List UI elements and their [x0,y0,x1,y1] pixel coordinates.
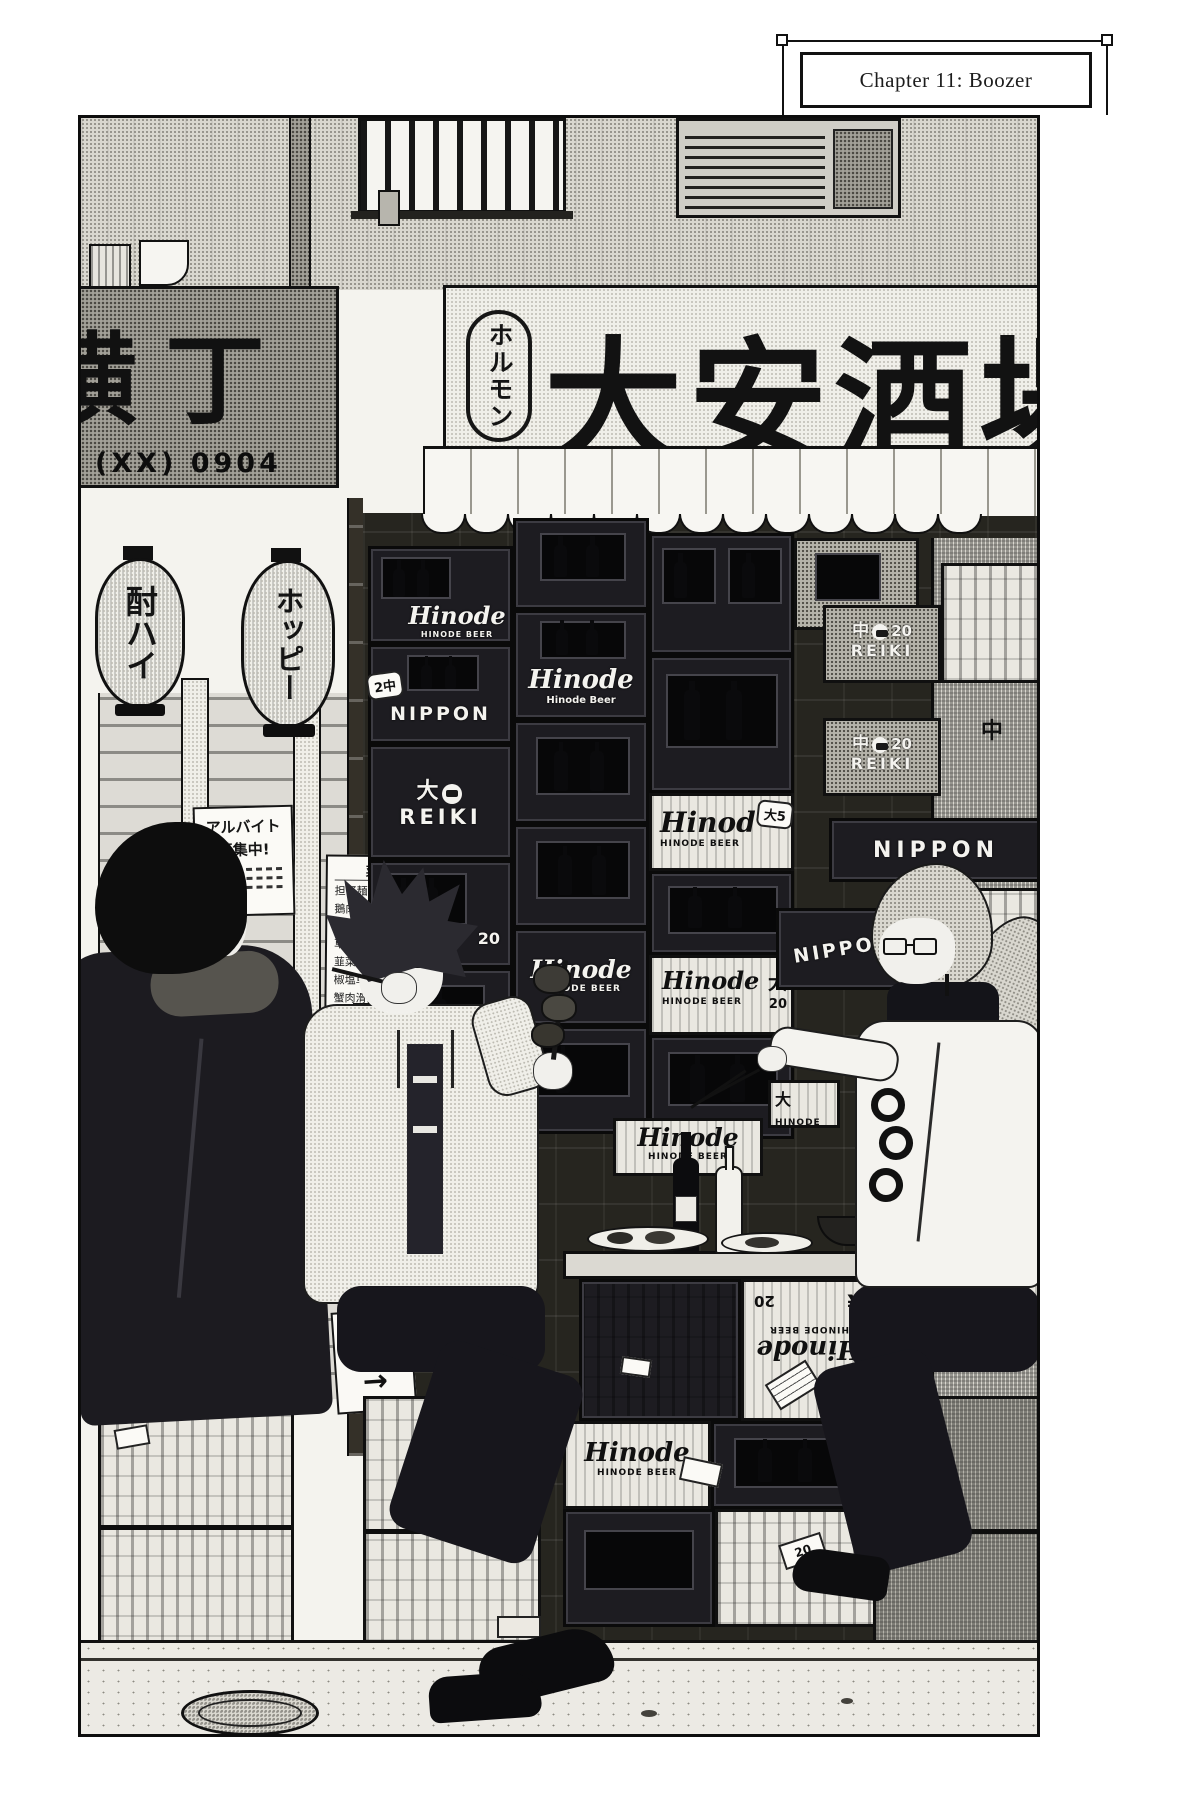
medium-mark-far-right: 中 [981,713,1003,745]
qty-20-label: 20 [891,735,912,753]
hinode-logo: Hinode [662,966,759,995]
title-frame-corner-right [1101,34,1113,46]
manga-page: { "page": { "chapter_title": "Chapter 11… [0,0,1200,1800]
sleeve-squiggle [865,1164,907,1206]
beer-crate [513,518,649,610]
crate-tag-large-5: 大5 [756,799,795,830]
awning [423,446,1040,516]
manhole-cover [181,1690,319,1736]
bottle-silhouette [586,629,598,655]
bottle-silhouette [393,569,405,597]
crate-window [666,674,778,748]
label-row: Hinode 大 [662,966,787,995]
hinode-caps: HINODE BEER [662,997,742,1012]
side-sign-phone: (XX) 0904 [95,448,282,479]
awning-scallop [765,514,810,534]
crate-window [662,548,716,604]
ac-louvers [685,129,825,209]
bottle-silhouette [586,545,599,577]
crate-window [536,841,630,899]
bottle-silhouette [684,690,700,740]
lantern-right-text: ホッピー [267,586,309,702]
ribbed-pipe [89,244,131,290]
crate-tag-2-medium: 2中 [365,670,404,702]
drain-pipe [289,118,311,288]
reiki-label: REIKI [371,805,510,829]
street-debris [841,1698,853,1704]
food-item [745,1237,779,1248]
bottle-silhouette [421,665,432,689]
reiki-label: REIKI [826,641,938,660]
hinode-logo: Hinode [407,601,507,630]
person-right-earring [945,974,949,996]
hoodie-drawstring [397,1030,400,1088]
crate-stool-left [98,1394,294,1660]
reiki-size-row: 大 [371,773,510,805]
skewer-meat [533,964,571,994]
crate-label: Hinode HINODE BEER [407,601,507,639]
beer-crate-hinode: Hinode Hinode Beer [513,610,649,720]
awning-scallop [421,514,466,534]
crate-window [381,557,451,599]
skewer-meat [531,1022,565,1048]
qty-20-label: 20 [891,622,912,640]
person-center-hand-at-mouth [381,972,417,1004]
bottle-silhouette [554,751,568,791]
badge-text: ホルモン [481,322,517,430]
reiki-size-row: 中20 [826,729,938,754]
person-left-jacket [78,942,333,1427]
beer-crate [513,720,649,824]
tag-text: 大5 [763,804,787,825]
reiki-oni-icon [872,737,888,753]
lantern-left: 酎ハイ [95,558,185,708]
plate-right [721,1232,813,1254]
skewer-meat [541,994,577,1022]
person-right-hand [757,1046,787,1072]
crate-window [407,655,479,691]
chapter-title: Chapter 11: Boozer [860,68,1033,93]
glasses-left-lens [883,938,907,955]
crate-window [815,553,881,601]
bottle-silhouette [688,896,702,928]
chapter-title-box: Chapter 11: Boozer [800,52,1092,108]
artwork-panel: 横丁 (XX) 0904 ホルモン 大安酒場 酎ハイ ホッピー アルバイト 募集… [78,115,1040,1737]
size-large-label: 大 [775,1090,791,1109]
bottle-silhouette [556,629,568,655]
beer-crate-reiki-medium: 中20 REIKI [823,605,941,683]
reiki-label: REIKI [826,754,938,773]
food-item [645,1231,675,1244]
glasses-right-lens [913,938,937,955]
crate-window [584,1530,694,1590]
lantern-left-text: 酎ハイ [117,585,163,681]
shop-name: 大安酒場 [544,292,1040,461]
hinode-beer-title: Hinode Beer [516,695,646,706]
beer-crate [649,655,794,793]
nippon-label: NIPPON [873,838,999,863]
label-row: HINODE BEER 20 [662,997,787,1012]
crate-window [536,737,630,795]
bottle-neck [725,1146,734,1170]
table-crate-dai-hinode: 大 HINODE [768,1080,840,1128]
hinode-word: HINODE [775,1118,821,1128]
duct-elbow-pipe [139,240,189,286]
bottle-label [675,1196,697,1222]
person-center-sock [497,1616,541,1638]
beer-crate-reiki: 大 REIKI [368,744,513,860]
bottle-silhouette [445,665,456,689]
title-frame-corner-left [776,34,788,46]
bottle-silhouette [590,751,604,791]
beer-crate [649,533,794,655]
size-medium-label: 中 [852,734,869,754]
crate-window [668,886,778,934]
lantern-right-cap [263,724,315,737]
crate-window [728,548,782,604]
jacket-fold-line [177,1039,204,1298]
jacket-seam [917,1042,941,1241]
qty-20-reversed: 20 [754,1292,775,1310]
awning-scallop [464,514,509,534]
shop-name-text: 大安酒場 [544,324,1040,461]
beer-crate [649,871,794,955]
bottle-silhouette [558,855,572,895]
awning-scallop [894,514,939,534]
tag-text: 2中 [373,675,397,697]
side-sign-name: 横丁 [81,322,293,439]
hinode-caps: HINODE BEER [660,839,756,849]
lantern-left-cap [115,704,165,716]
hoodie-drawstring [451,1030,454,1088]
street-debris [641,1710,657,1717]
bottle-silhouette [417,569,429,597]
reiki-oni-icon [442,784,462,804]
nippon-label: NIPPON [371,703,510,725]
food-item [607,1232,633,1244]
shop-signboard: ホルモン 大安酒場 [443,285,1040,461]
beer-crate: Hinode HINODE BEER [368,546,513,644]
hinode-caps: HINODE BEER [407,630,507,639]
hoodie-toggle [413,1076,437,1083]
size-medium-label: 中 [852,621,869,641]
awning-scallop [851,514,896,534]
qty-20-label: 20 [478,929,500,948]
ac-side-panel [833,129,893,209]
phone-number: (XX) 0904 [95,448,282,479]
manhole-inner-ring [198,1699,302,1727]
bottle-silhouette [742,562,755,598]
crate-label: 大 REIKI [371,773,510,829]
reiki-oni-icon [872,624,888,640]
person-center-shoe [428,1670,543,1724]
sign-badge: ホルモン [466,310,532,442]
table-leg-crate [579,1279,741,1421]
awning-scallop [808,514,853,534]
crate-label: Hinod HINODE BEER [660,806,756,849]
bottom-crate [563,1509,715,1627]
sleeve-squiggle [874,1121,918,1165]
bottle-neck [681,1132,691,1160]
awning-scallop [679,514,724,534]
bottle-silhouette [798,1448,812,1482]
qty-20-label: 20 [769,997,787,1012]
hoodie-toggle [413,1126,437,1133]
lantern-right: ホッピー [241,560,335,728]
hinod-logo: Hinod [660,806,756,839]
bottle-silhouette [728,896,742,928]
awning-scallop [722,514,767,534]
ac-unit [676,118,901,218]
awning-scallop [937,514,982,534]
bottle-silhouette [726,690,742,740]
beer-crate-reiki-medium: 中20 REIKI [823,718,941,796]
crate-window [540,533,626,581]
crate-label: Hinode Hinode Beer [516,665,646,706]
wall-box [378,190,400,226]
crate-window [540,621,626,659]
stool-divider [101,1525,291,1530]
bottle-silhouette [674,562,687,598]
bottle-silhouette [592,855,606,895]
side-sign-text: 横丁 [81,299,293,444]
beer-crate [513,824,649,928]
stool-sticker [114,1424,151,1450]
plate-left [587,1226,709,1252]
sleeve-squiggle [871,1088,905,1122]
beer-crate-hinode-white: Hinode 大 HINODE BEER 20 [649,955,794,1035]
size-large-label: 大 [416,779,438,804]
beer-crate [941,563,1040,683]
person-right-face [879,918,955,984]
glasses-bridge [906,944,914,946]
crate-label: Hinode 大 HINODE BEER 20 [662,966,787,1012]
bottle-silhouette [554,545,567,577]
reiki-size-row: 中20 [826,616,938,641]
bottle-silhouette [758,1448,772,1482]
hinode-logo: Hinode [516,665,646,695]
side-sign: 横丁 (XX) 0904 [81,286,339,488]
